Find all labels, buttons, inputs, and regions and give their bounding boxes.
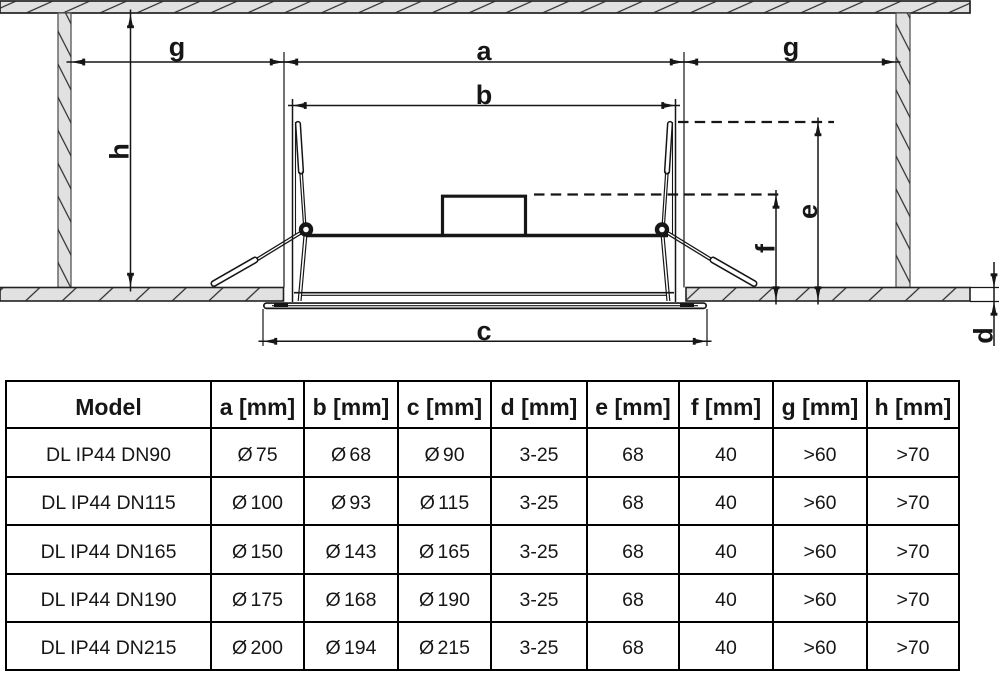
svg-text:g: g	[169, 32, 186, 62]
svg-text:f: f	[751, 243, 781, 253]
svg-text:c: c	[476, 316, 491, 346]
svg-text:e: e	[793, 204, 823, 219]
svg-text:a: a	[476, 36, 492, 66]
svg-text:h: h	[105, 143, 135, 160]
svg-text:b: b	[476, 80, 493, 110]
svg-text:g: g	[783, 32, 800, 62]
svg-text:d: d	[969, 327, 999, 344]
